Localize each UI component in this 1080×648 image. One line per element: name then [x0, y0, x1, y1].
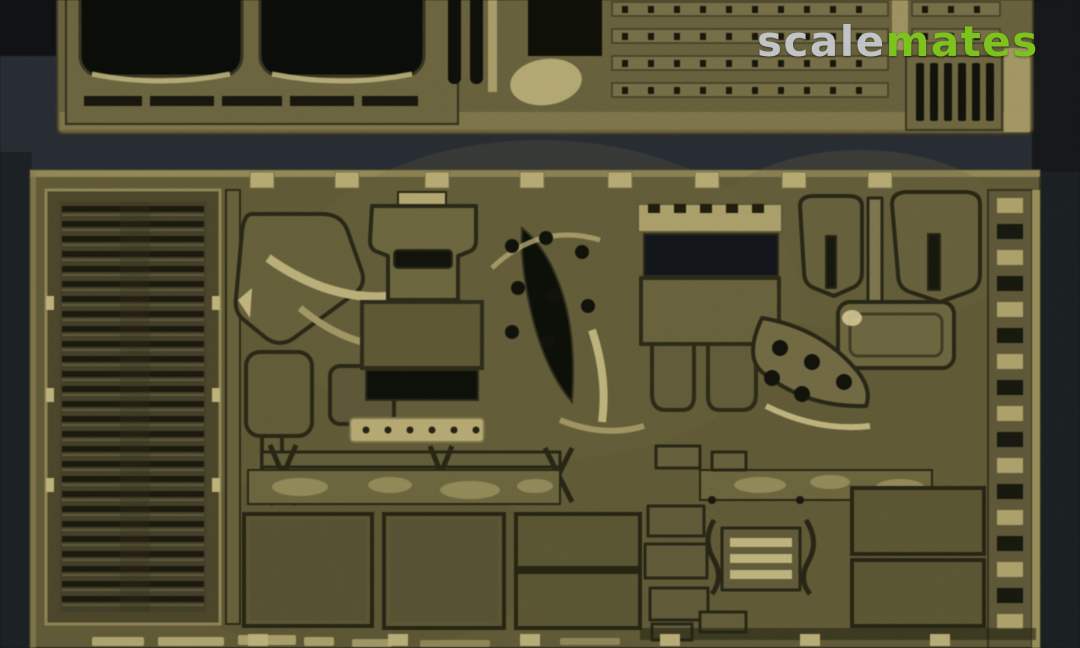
- film-grain-overlay: [0, 0, 1080, 648]
- product-photo: scalemates: [0, 0, 1080, 648]
- watermark-text-scale: scale: [757, 17, 886, 66]
- watermark-text-mates: mates: [886, 17, 1039, 66]
- scalemates-watermark: scalemates: [757, 21, 1039, 63]
- photo-scene: [0, 0, 1080, 648]
